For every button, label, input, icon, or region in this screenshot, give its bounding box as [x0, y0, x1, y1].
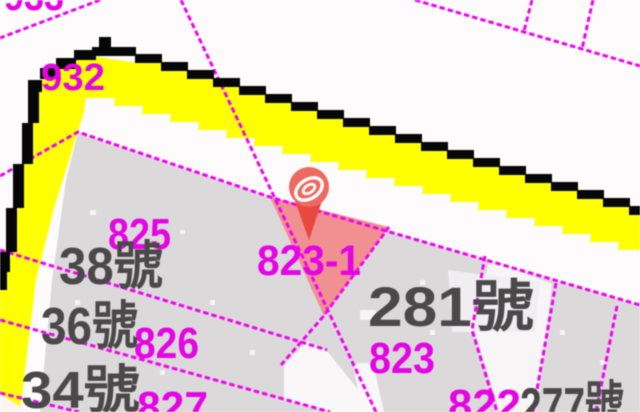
svg-text:932: 932 [41, 57, 105, 99]
svg-text:823: 823 [369, 334, 435, 383]
svg-text:933: 933 [4, 0, 64, 19]
svg-text:277號: 277號 [520, 378, 624, 412]
svg-text:281號: 281號 [368, 275, 534, 338]
svg-text:823-1: 823-1 [257, 237, 361, 285]
svg-text:826: 826 [134, 319, 199, 368]
svg-text:822: 822 [448, 381, 521, 412]
svg-text:827: 827 [137, 383, 208, 412]
svg-text:38號: 38號 [59, 238, 163, 296]
svg-text:34號: 34號 [21, 362, 140, 412]
svg-text:36號: 36號 [41, 298, 138, 356]
